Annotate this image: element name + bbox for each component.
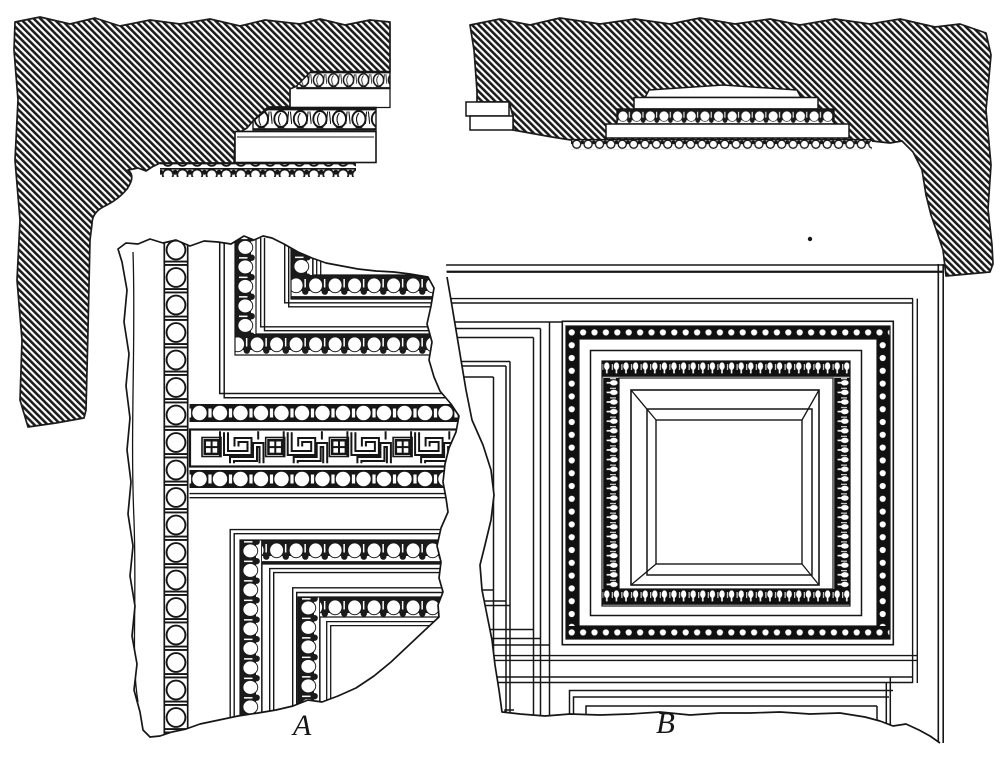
svg-text:A: A [291,709,312,742]
svg-text:B: B [656,705,675,740]
